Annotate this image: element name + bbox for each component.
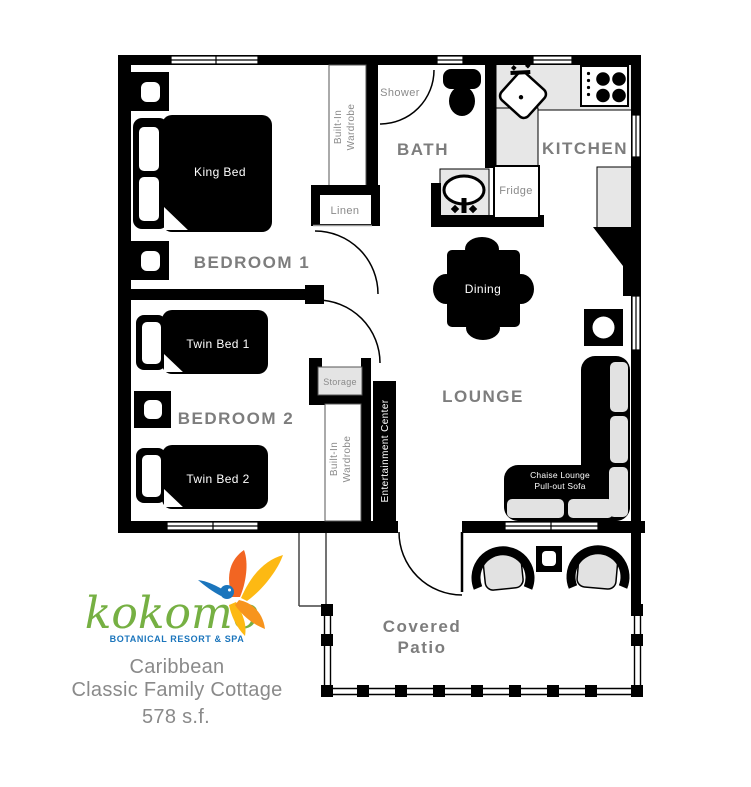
patio-railing bbox=[321, 604, 643, 697]
twin-bed-2: Twin Bed 2 bbox=[136, 445, 268, 509]
patio-chair bbox=[571, 548, 625, 589]
wardrobe1-label-line1: Built-In bbox=[333, 110, 344, 144]
wardrobe-bedroom2: Built-In Wardrobe bbox=[325, 404, 361, 521]
linen-closet: Linen bbox=[311, 185, 380, 226]
twin-bed-1-label: Twin Bed 1 bbox=[186, 337, 249, 351]
entertainment-center: Entertainment Center bbox=[373, 381, 396, 521]
caption-area: 578 s.f. bbox=[142, 706, 210, 728]
bedroom1-label: BEDROOM 1 bbox=[194, 253, 310, 272]
window-right-kitchen bbox=[632, 115, 640, 157]
window-top-bath bbox=[437, 56, 463, 64]
fridge-label: Fridge bbox=[499, 185, 533, 197]
window-top-kitchen bbox=[533, 56, 572, 64]
storage-closet: Storage bbox=[318, 367, 362, 395]
patio-label-line1: Covered bbox=[383, 617, 462, 636]
nightstand bbox=[131, 241, 169, 280]
nightstand bbox=[134, 391, 171, 428]
floorplan-page: Built-In Wardrobe Linen Storage Built-In… bbox=[0, 0, 751, 787]
chaise-sofa: Chaise Lounge Pull-out Sofa bbox=[504, 356, 630, 521]
wardrobe-bedroom1: Built-In Wardrobe bbox=[329, 65, 366, 186]
dining-label: Dining bbox=[465, 282, 501, 296]
caption-line1: Caribbean bbox=[130, 656, 225, 678]
twin-bed-2-label: Twin Bed 2 bbox=[186, 472, 249, 486]
patio-chair bbox=[476, 549, 530, 591]
nightstand bbox=[131, 72, 169, 111]
window-top-bedroom1 bbox=[171, 56, 258, 64]
patio-roofline bbox=[299, 533, 326, 606]
caption-line2: Classic Family Cottage bbox=[71, 679, 282, 701]
window-bottom-bedroom2 bbox=[167, 522, 258, 530]
side-table bbox=[584, 309, 623, 346]
plan-caption: Caribbean Classic Family Cottage 578 s.f… bbox=[71, 656, 282, 728]
patio-label-line2: Patio bbox=[397, 638, 446, 657]
king-bed-label: King Bed bbox=[194, 165, 246, 179]
kitchen-label: KITCHEN bbox=[542, 139, 628, 158]
fridge: Fridge bbox=[494, 166, 539, 218]
bedroom1-door-arc bbox=[315, 231, 378, 294]
window-right-lounge bbox=[632, 296, 640, 350]
shower-label: Shower bbox=[380, 87, 420, 99]
logo-tagline: BOTANICAL RESORT & SPA bbox=[110, 634, 245, 644]
bath-label: BATH bbox=[397, 140, 449, 159]
sofa-label-line2: Pull-out Sofa bbox=[534, 481, 585, 491]
twin-bed-1: Twin Bed 1 bbox=[136, 310, 268, 374]
wardrobe2-label-line2: Wardrobe bbox=[342, 436, 353, 483]
wardrobe1-label-line2: Wardrobe bbox=[346, 104, 357, 151]
kokomo-logo: kokomo BOTANICAL RESORT & SPA bbox=[85, 550, 283, 644]
sofa-label-line1: Chaise Lounge bbox=[530, 470, 590, 480]
bedroom2-door-arc bbox=[317, 300, 380, 363]
floorplan-drawing: Built-In Wardrobe Linen Storage Built-In… bbox=[0, 0, 751, 787]
stove bbox=[581, 66, 628, 106]
toilet bbox=[443, 69, 481, 116]
dining-set: Dining bbox=[433, 237, 534, 340]
door-arcs bbox=[315, 231, 380, 363]
patio-table bbox=[536, 546, 562, 572]
entertainment-center-label: Entertainment Center bbox=[380, 399, 391, 502]
window-bottom-lounge bbox=[505, 522, 598, 530]
king-bed: King Bed bbox=[133, 115, 272, 232]
lounge-label: LOUNGE bbox=[442, 387, 524, 406]
wardrobe2-label-line1: Built-In bbox=[329, 442, 340, 476]
linen-label: Linen bbox=[331, 205, 360, 217]
bedroom2-label: BEDROOM 2 bbox=[178, 409, 294, 428]
patio-entry-door bbox=[399, 532, 462, 595]
storage-label: Storage bbox=[323, 377, 357, 387]
